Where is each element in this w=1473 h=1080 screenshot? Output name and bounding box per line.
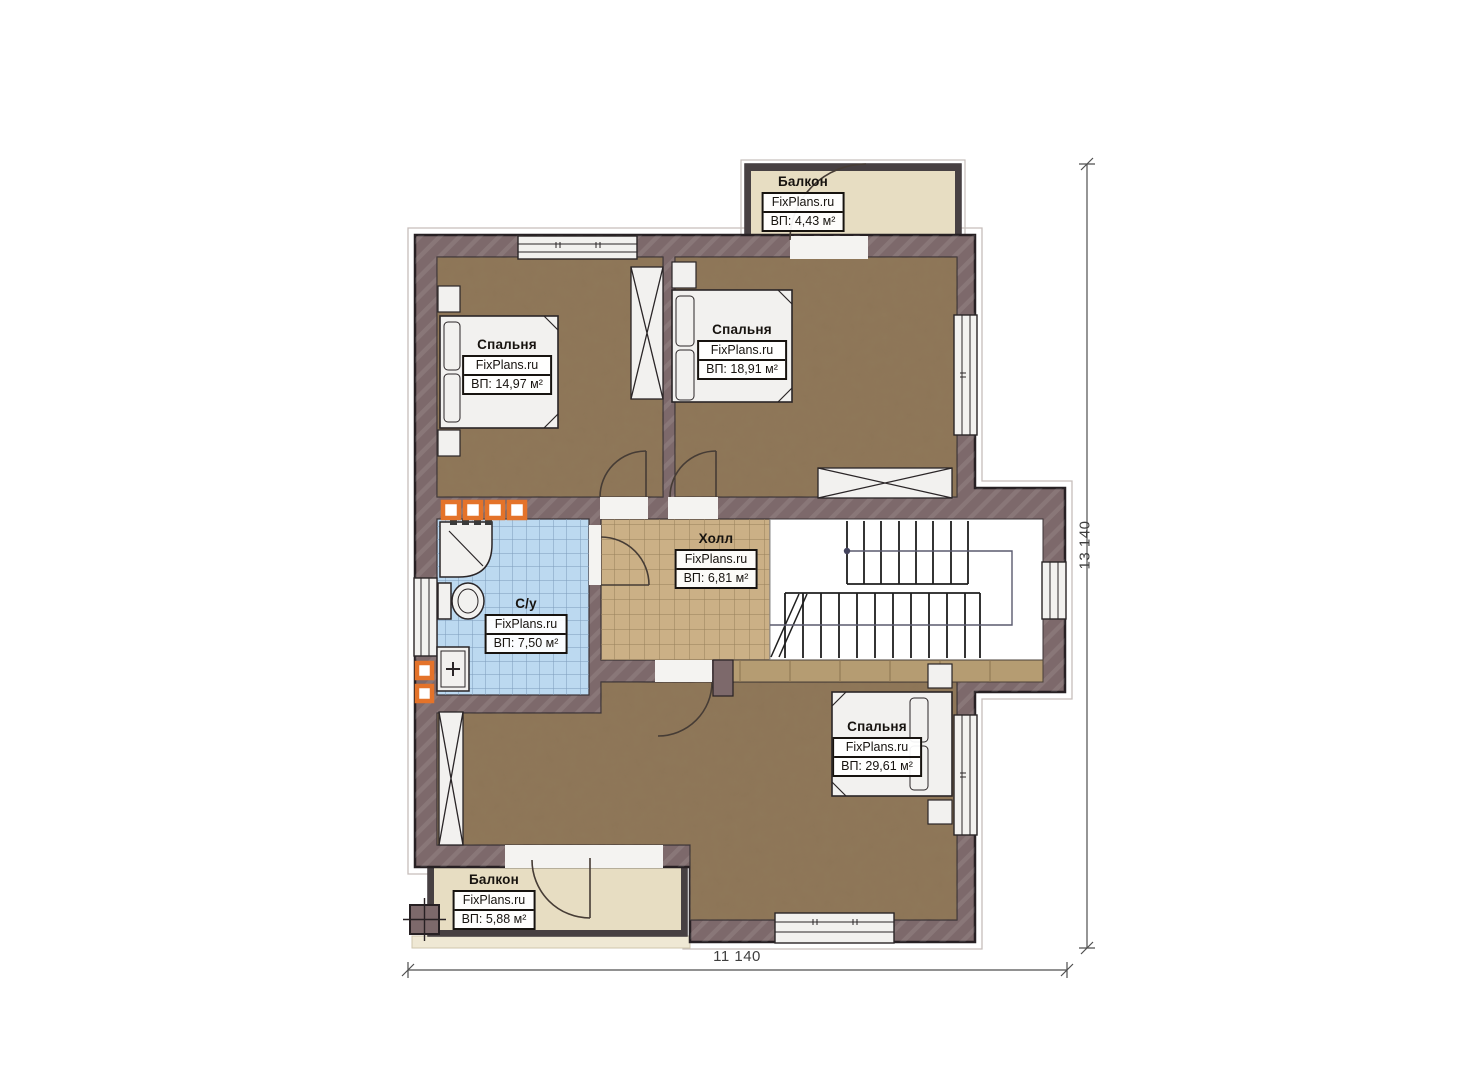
sink-icon bbox=[437, 647, 469, 691]
room-label-balcony-top: Балкон FixPlans.ru ВП: 4,43 м² bbox=[762, 174, 845, 232]
wardrobe-icon bbox=[818, 468, 952, 498]
floor-plan-canvas: Спальня FixPlans.ru ВП: 14,97 м² Спальня… bbox=[0, 0, 1473, 1080]
room-info-box: FixPlans.ru ВП: 29,61 м² bbox=[832, 737, 922, 777]
window-stairwell bbox=[1042, 562, 1066, 619]
room-name: Балкон bbox=[762, 174, 845, 189]
room-name: Холл bbox=[675, 531, 758, 546]
room-info-box: FixPlans.ru ВП: 14,97 м² bbox=[462, 355, 552, 395]
brand-watermark: FixPlans.ru bbox=[764, 194, 843, 213]
brand-watermark: FixPlans.ru bbox=[677, 551, 756, 570]
room-info-box: FixPlans.ru ВП: 6,81 м² bbox=[675, 549, 758, 589]
dimension-height-label: 13 140 bbox=[1077, 521, 1094, 570]
room-name: Спальня bbox=[462, 337, 552, 352]
area-label: ВП: 18,91 м² bbox=[699, 361, 785, 378]
room-name: Спальня bbox=[697, 322, 787, 337]
window-bathroom bbox=[414, 578, 437, 656]
window-top-left bbox=[518, 236, 637, 259]
area-label: ВП: 4,43 м² bbox=[764, 213, 843, 230]
area-label: ВП: 6,81 м² bbox=[677, 570, 756, 587]
brand-watermark: FixPlans.ru bbox=[464, 357, 550, 376]
floor-staircase bbox=[770, 519, 1043, 660]
room-name: Балкон bbox=[453, 872, 536, 887]
window-right-upper bbox=[954, 315, 977, 435]
brand-watermark: FixPlans.ru bbox=[487, 616, 566, 635]
room-name: С/у bbox=[485, 596, 568, 611]
wardrobe-icon bbox=[439, 712, 463, 845]
dimension-width-label: 11 140 bbox=[713, 948, 761, 965]
room-info-box: FixPlans.ru ВП: 18,91 м² bbox=[697, 340, 787, 380]
brand-watermark: FixPlans.ru bbox=[699, 342, 785, 361]
brand-watermark: FixPlans.ru bbox=[834, 739, 920, 758]
room-label-bedroom-top-left: Спальня FixPlans.ru ВП: 14,97 м² bbox=[462, 337, 552, 395]
toilet-icon bbox=[438, 583, 484, 619]
area-label: ВП: 14,97 м² bbox=[464, 376, 550, 393]
window-right-lower bbox=[954, 715, 977, 835]
room-info-box: FixPlans.ru ВП: 7,50 м² bbox=[485, 614, 568, 654]
shower-icon bbox=[440, 519, 492, 577]
room-label-bathroom: С/у FixPlans.ru ВП: 7,50 м² bbox=[485, 596, 568, 654]
brand-watermark: FixPlans.ru bbox=[455, 892, 534, 911]
room-name: Спальня bbox=[832, 719, 922, 734]
area-label: ВП: 5,88 м² bbox=[455, 911, 534, 928]
room-info-box: FixPlans.ru ВП: 5,88 м² bbox=[453, 890, 536, 930]
area-label: ВП: 7,50 м² bbox=[487, 635, 566, 652]
wardrobe-icon bbox=[631, 267, 663, 399]
room-label-hall: Холл FixPlans.ru ВП: 6,81 м² bbox=[675, 531, 758, 589]
room-info-box: FixPlans.ru ВП: 4,43 м² bbox=[762, 192, 845, 232]
room-label-bedroom-top-right: Спальня FixPlans.ru ВП: 18,91 м² bbox=[697, 322, 787, 380]
room-label-bedroom-bottom: Спальня FixPlans.ru ВП: 29,61 м² bbox=[832, 719, 922, 777]
column-marker bbox=[403, 898, 446, 941]
window-bottom bbox=[775, 913, 894, 943]
area-label: ВП: 29,61 м² bbox=[834, 758, 920, 775]
room-label-balcony-bottom: Балкон FixPlans.ru ВП: 5,88 м² bbox=[453, 872, 536, 930]
